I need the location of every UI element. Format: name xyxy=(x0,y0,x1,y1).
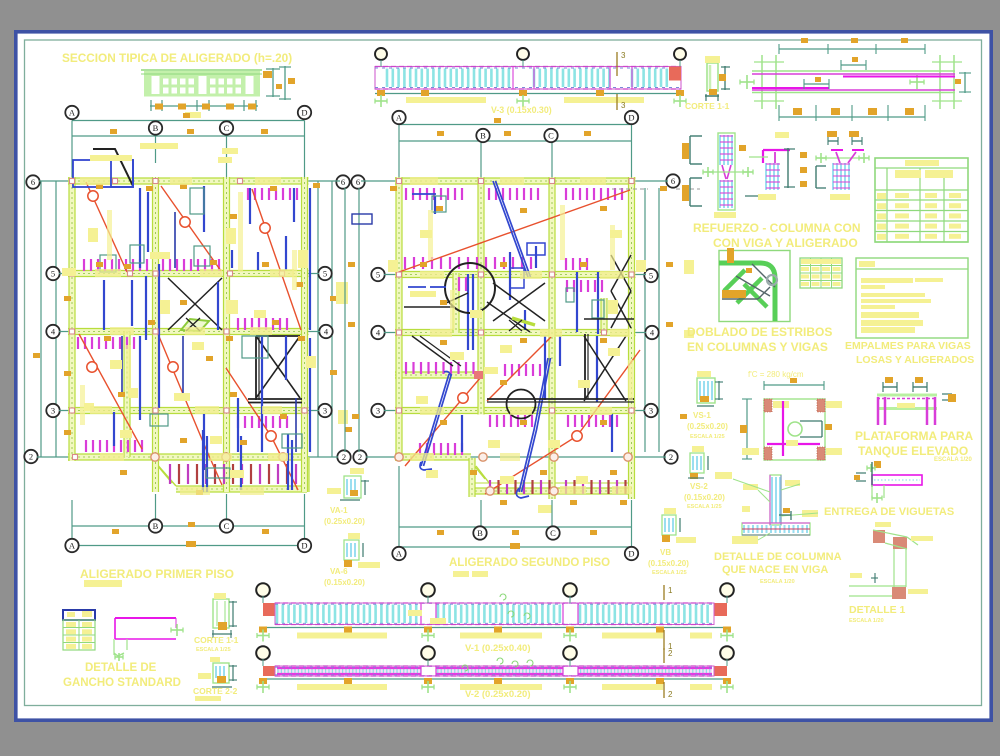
svg-text:ESCALA 1/20: ESCALA 1/20 xyxy=(849,618,884,624)
svg-text:D: D xyxy=(301,541,307,551)
svg-text:(0.25x0.20): (0.25x0.20) xyxy=(687,422,728,431)
svg-text:PLATAFORMA PARA: PLATAFORMA PARA xyxy=(855,429,974,443)
svg-text:D: D xyxy=(628,113,634,123)
svg-text:V-2 (0.25x0.20): V-2 (0.25x0.20) xyxy=(465,689,531,700)
svg-text:(0.15x0.20): (0.15x0.20) xyxy=(648,559,689,568)
svg-text:EMPALMES PARA VIGAS: EMPALMES PARA VIGAS xyxy=(845,340,971,352)
svg-text:ENTREGA DE VIGUETAS: ENTREGA DE VIGUETAS xyxy=(824,506,954,518)
svg-text:DETALLE DE COLUMNA: DETALLE DE COLUMNA xyxy=(714,551,842,563)
svg-text:SECCION TIPICA DE ALIGERADO (h: SECCION TIPICA DE ALIGERADO (h=.20) xyxy=(62,51,292,65)
svg-text:CORTE 1-1: CORTE 1-1 xyxy=(194,635,239,645)
svg-text:2: 2 xyxy=(342,452,346,462)
svg-text:2: 2 xyxy=(668,690,673,699)
svg-text:B: B xyxy=(153,521,159,531)
svg-text:REFUERZO - COLUMNA CON: REFUERZO - COLUMNA CON xyxy=(693,221,861,235)
svg-text:D: D xyxy=(628,549,634,559)
svg-text:DETALLE DE: DETALLE DE xyxy=(85,662,157,674)
svg-text:C: C xyxy=(548,131,554,141)
svg-text:5: 5 xyxy=(376,270,380,280)
svg-text:CORTE 2-2: CORTE 2-2 xyxy=(193,686,238,696)
svg-text:B: B xyxy=(477,528,483,538)
svg-text:VA-1: VA-1 xyxy=(330,506,348,515)
svg-text:CORTE 1-1: CORTE 1-1 xyxy=(685,101,730,111)
svg-text:(0.15x0.20): (0.15x0.20) xyxy=(684,493,725,502)
svg-text:VB: VB xyxy=(660,548,671,557)
svg-text:CON VIGA Y ALIGERADO: CON VIGA Y ALIGERADO xyxy=(713,236,858,250)
svg-text:ESCALA 1/25: ESCALA 1/25 xyxy=(652,570,687,576)
svg-text:1: 1 xyxy=(668,586,673,595)
svg-text:3: 3 xyxy=(621,51,626,60)
svg-text:ESCALA 1/20: ESCALA 1/20 xyxy=(934,457,972,463)
svg-text:3: 3 xyxy=(323,406,327,416)
svg-text:2: 2 xyxy=(668,649,673,658)
svg-text:A: A xyxy=(396,549,403,559)
svg-text:VS-1: VS-1 xyxy=(693,411,711,420)
svg-text:GANCHO STANDARD: GANCHO STANDARD xyxy=(63,677,181,689)
svg-text:ESCALA 1/20: ESCALA 1/20 xyxy=(760,579,795,585)
svg-text:3: 3 xyxy=(376,406,380,416)
svg-text:5: 5 xyxy=(51,269,55,279)
svg-text:LOSAS Y ALIGERADOS: LOSAS Y ALIGERADOS xyxy=(856,354,974,366)
svg-text:f'C = 280 kg/cm: f'C = 280 kg/cm xyxy=(748,370,804,379)
svg-text:ESCALA 1/25: ESCALA 1/25 xyxy=(690,434,725,440)
svg-text:QUE NACE EN VIGA: QUE NACE EN VIGA xyxy=(722,564,828,576)
svg-text:VA-6: VA-6 xyxy=(330,567,348,576)
svg-text:EN COLUMNAS Y VIGAS: EN COLUMNAS Y VIGAS xyxy=(687,340,828,354)
svg-text:ALIGERADO PRIMER PISO: ALIGERADO PRIMER PISO xyxy=(80,567,234,581)
svg-text:V-1 (0.25x0.40): V-1 (0.25x0.40) xyxy=(465,643,531,654)
svg-text:C: C xyxy=(550,528,556,538)
svg-text:2: 2 xyxy=(358,452,362,462)
svg-text:B: B xyxy=(480,131,486,141)
svg-text:(0.25x0.20): (0.25x0.20) xyxy=(324,517,365,526)
svg-text:C: C xyxy=(224,123,230,133)
svg-text:3: 3 xyxy=(51,406,55,416)
svg-text:6: 6 xyxy=(31,177,35,187)
svg-text:VS-2: VS-2 xyxy=(690,482,708,491)
svg-text:2: 2 xyxy=(29,452,33,462)
svg-text:DOBLADO DE ESTRIBOS: DOBLADO DE ESTRIBOS xyxy=(687,325,832,339)
svg-text:C: C xyxy=(224,521,230,531)
svg-text:DETALLE 1: DETALLE 1 xyxy=(849,604,906,616)
svg-text:2: 2 xyxy=(669,452,673,462)
svg-text:3: 3 xyxy=(621,101,626,110)
svg-text:5: 5 xyxy=(323,269,327,279)
svg-text:ALIGERADO SEGUNDO PISO: ALIGERADO SEGUNDO PISO xyxy=(449,557,610,569)
svg-text:B: B xyxy=(153,123,159,133)
svg-text:A: A xyxy=(69,108,76,118)
svg-text:3: 3 xyxy=(649,406,653,416)
svg-text:V-3 (0.15x0.30): V-3 (0.15x0.30) xyxy=(491,105,552,115)
svg-text:D: D xyxy=(301,108,307,118)
svg-text:A: A xyxy=(396,113,403,123)
svg-text:(0.15x0.20): (0.15x0.20) xyxy=(324,578,365,587)
svg-text:6: 6 xyxy=(671,176,675,186)
svg-text:ESCALA 1/25: ESCALA 1/25 xyxy=(687,504,722,510)
svg-text:A: A xyxy=(69,541,76,551)
svg-text:5: 5 xyxy=(649,271,653,281)
svg-text:6: 6 xyxy=(341,177,345,187)
svg-text:6: 6 xyxy=(356,177,360,187)
svg-text:ESCALA 1/25: ESCALA 1/25 xyxy=(196,647,231,653)
svg-text:TANQUE ELEVADO: TANQUE ELEVADO xyxy=(858,444,968,458)
